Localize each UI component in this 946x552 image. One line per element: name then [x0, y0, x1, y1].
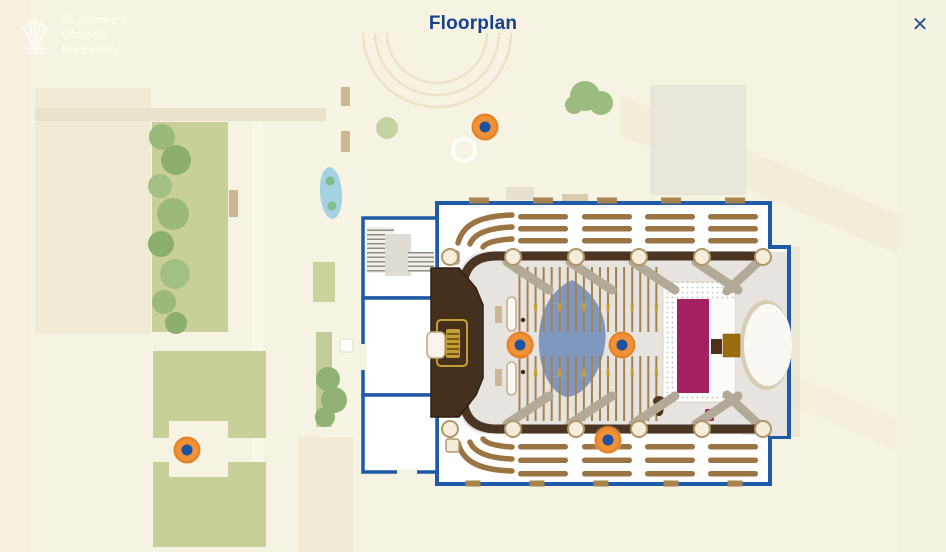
- map-marker-nave-west[interactable]: [507, 332, 534, 359]
- altar-table: [723, 334, 740, 357]
- map-marker-garden[interactable]: [174, 437, 201, 464]
- floorplan-map: [0, 0, 946, 552]
- church-building: [360, 198, 792, 487]
- chancel-carpet: [677, 299, 709, 393]
- page-title: Floorplan: [0, 13, 946, 35]
- map-marker-courtyard[interactable]: [472, 114, 499, 141]
- organ: [427, 268, 483, 417]
- close-button[interactable]: ✕: [905, 9, 935, 39]
- map-marker-south-gallery[interactable]: [595, 427, 622, 454]
- map-marker-nave-east[interactable]: [609, 332, 636, 359]
- floorplan-modal: St James's Church Piccadilly Floorplan ✕: [0, 0, 946, 552]
